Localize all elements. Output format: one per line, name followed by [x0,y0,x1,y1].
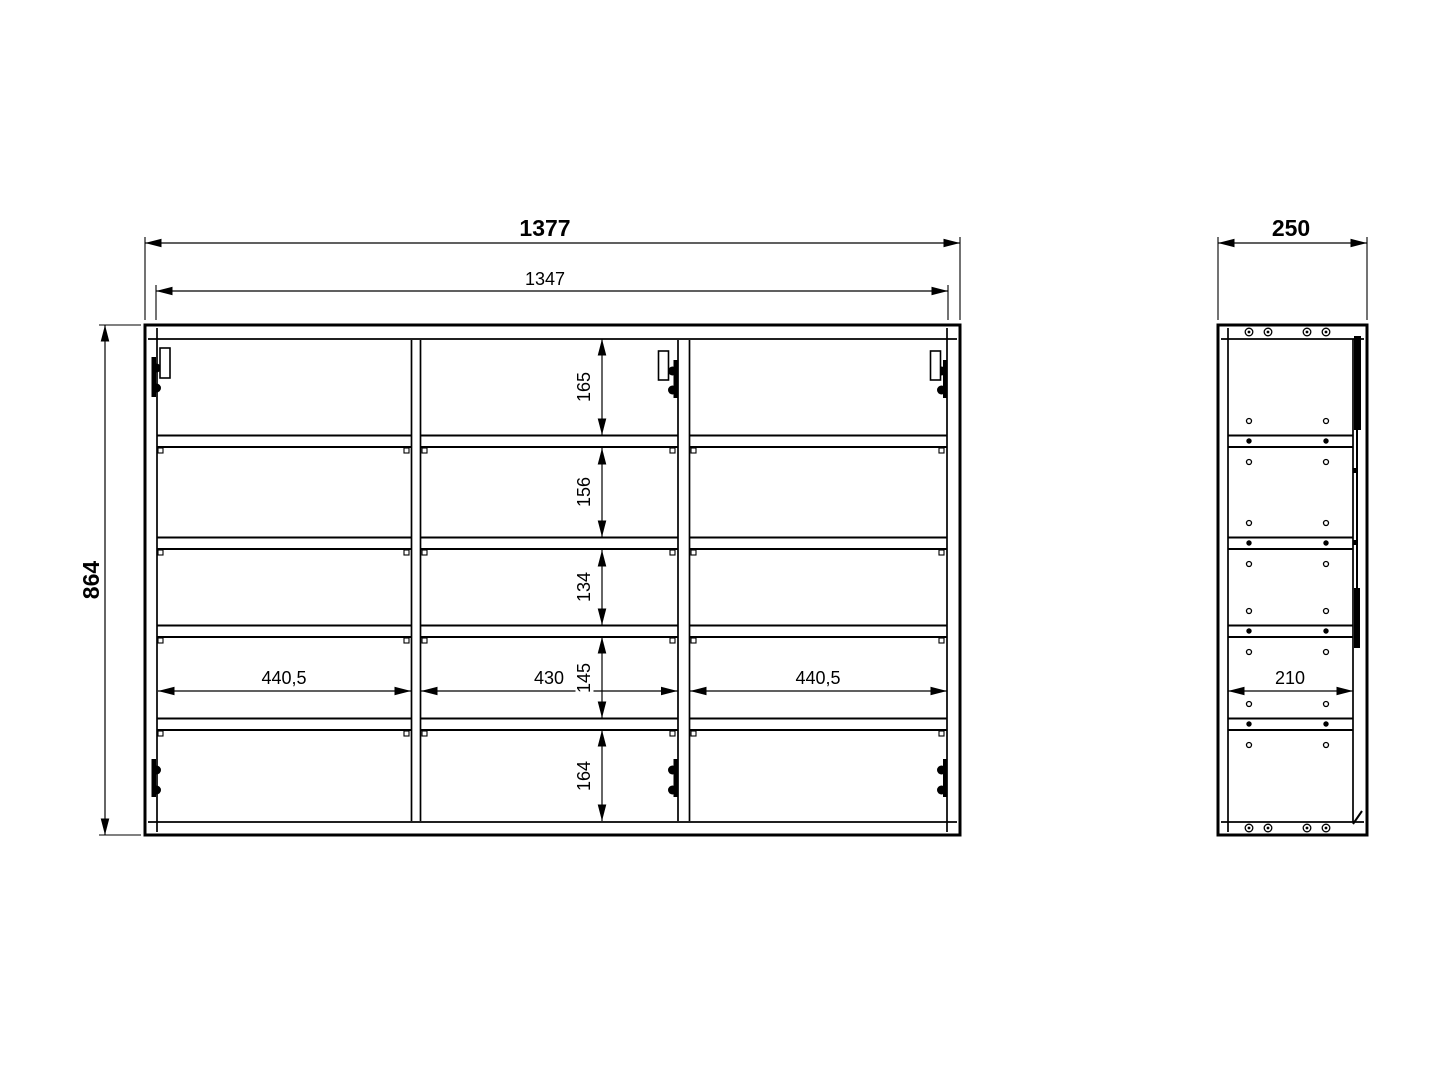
dim-label-row-5: 164 [574,761,594,791]
front-view: 1377 1347 864 440,5 430 440,5 [78,215,960,835]
side-view-door-hinge [1353,336,1362,824]
shelf-clips [158,448,944,736]
side-view-shelves [1228,419,1353,748]
hinge-plate-right [931,351,941,380]
dim-label-compartment-middle: 430 [534,668,564,688]
front-view-dimensions: 1377 1347 864 440,5 430 440,5 [78,215,960,835]
dim-label-row-2: 156 [574,477,594,507]
dim-label-inner-depth: 210 [1275,668,1305,688]
front-view-hinges [152,357,948,797]
side-view: 250 210 [1218,215,1367,835]
side-view-carcass [1218,325,1367,835]
front-view-carcass [145,325,960,835]
hinge-top-middle [668,360,678,398]
dim-label-overall-width: 1377 [519,215,570,241]
dim-label-overall-depth: 250 [1272,215,1310,241]
dim-label-row-4: 145 [574,663,594,693]
dim-label-overall-height: 864 [78,561,104,600]
dim-label-row-3: 134 [574,572,594,602]
shelf-pin-holes [1247,419,1329,748]
side-view-screw-holes [1245,328,1330,832]
front-view-hinge-plates [160,348,941,380]
hinge-plate-middle [659,351,669,380]
dim-label-inner-width: 1347 [525,269,565,289]
drawing-canvas: 1377 1347 864 440,5 430 440,5 [0,0,1449,1086]
side-view-dimensions: 250 210 [1218,215,1367,691]
dim-label-row-1: 165 [574,372,594,402]
dim-label-compartment-left: 440,5 [261,668,306,688]
hinge-bottom-right [937,759,948,797]
front-view-dividers [412,340,690,821]
dim-label-compartment-right: 440,5 [795,668,840,688]
cabinet-technical-drawing: 1377 1347 864 440,5 430 440,5 [0,0,1449,1086]
hinge-plate-left [160,348,170,378]
hinge-bottom-middle [668,759,678,797]
